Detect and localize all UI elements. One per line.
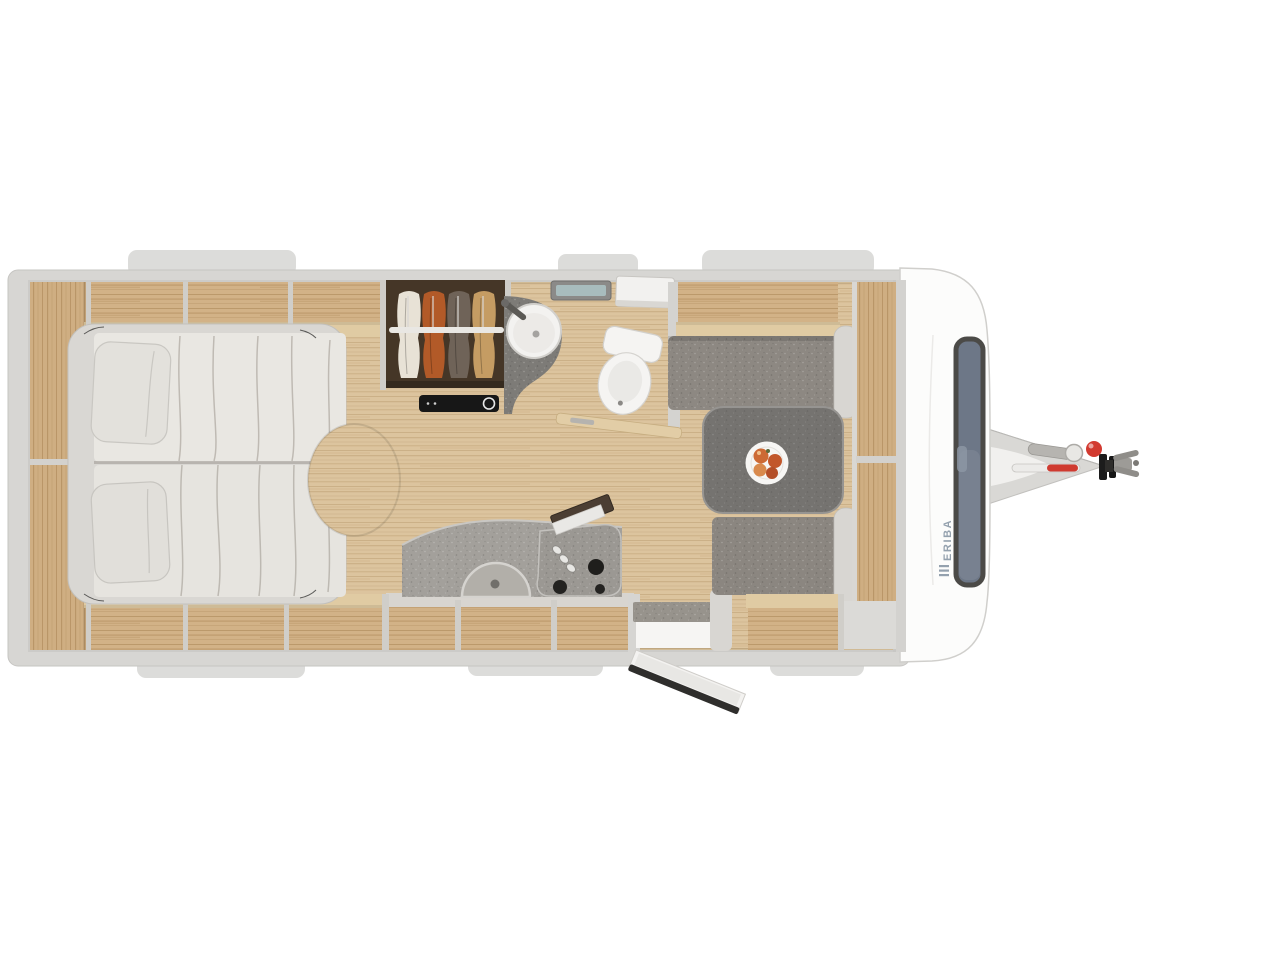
wardrobe-rail: [389, 327, 504, 333]
burner: [595, 584, 605, 594]
fruit-plate: [746, 442, 789, 485]
front-window: [956, 339, 983, 585]
coupling-head: [1099, 449, 1140, 480]
drawbar: [988, 429, 1140, 504]
burner: [588, 559, 604, 575]
washroom-window: [551, 281, 611, 300]
wardrobe-with-clothes: [380, 280, 511, 390]
pillow-bottom: [90, 481, 170, 584]
entry-step: [636, 620, 712, 648]
burner: [553, 580, 567, 594]
brand-label: ERIBA: [942, 519, 954, 561]
overhead-cabinet: [615, 276, 674, 308]
pillow-top: [90, 341, 171, 445]
floor-tongue: [308, 424, 400, 536]
gas-hob: [537, 525, 621, 596]
caravan-floorplan: ERIBA: [0, 0, 1280, 960]
heater-panel: [419, 395, 499, 412]
